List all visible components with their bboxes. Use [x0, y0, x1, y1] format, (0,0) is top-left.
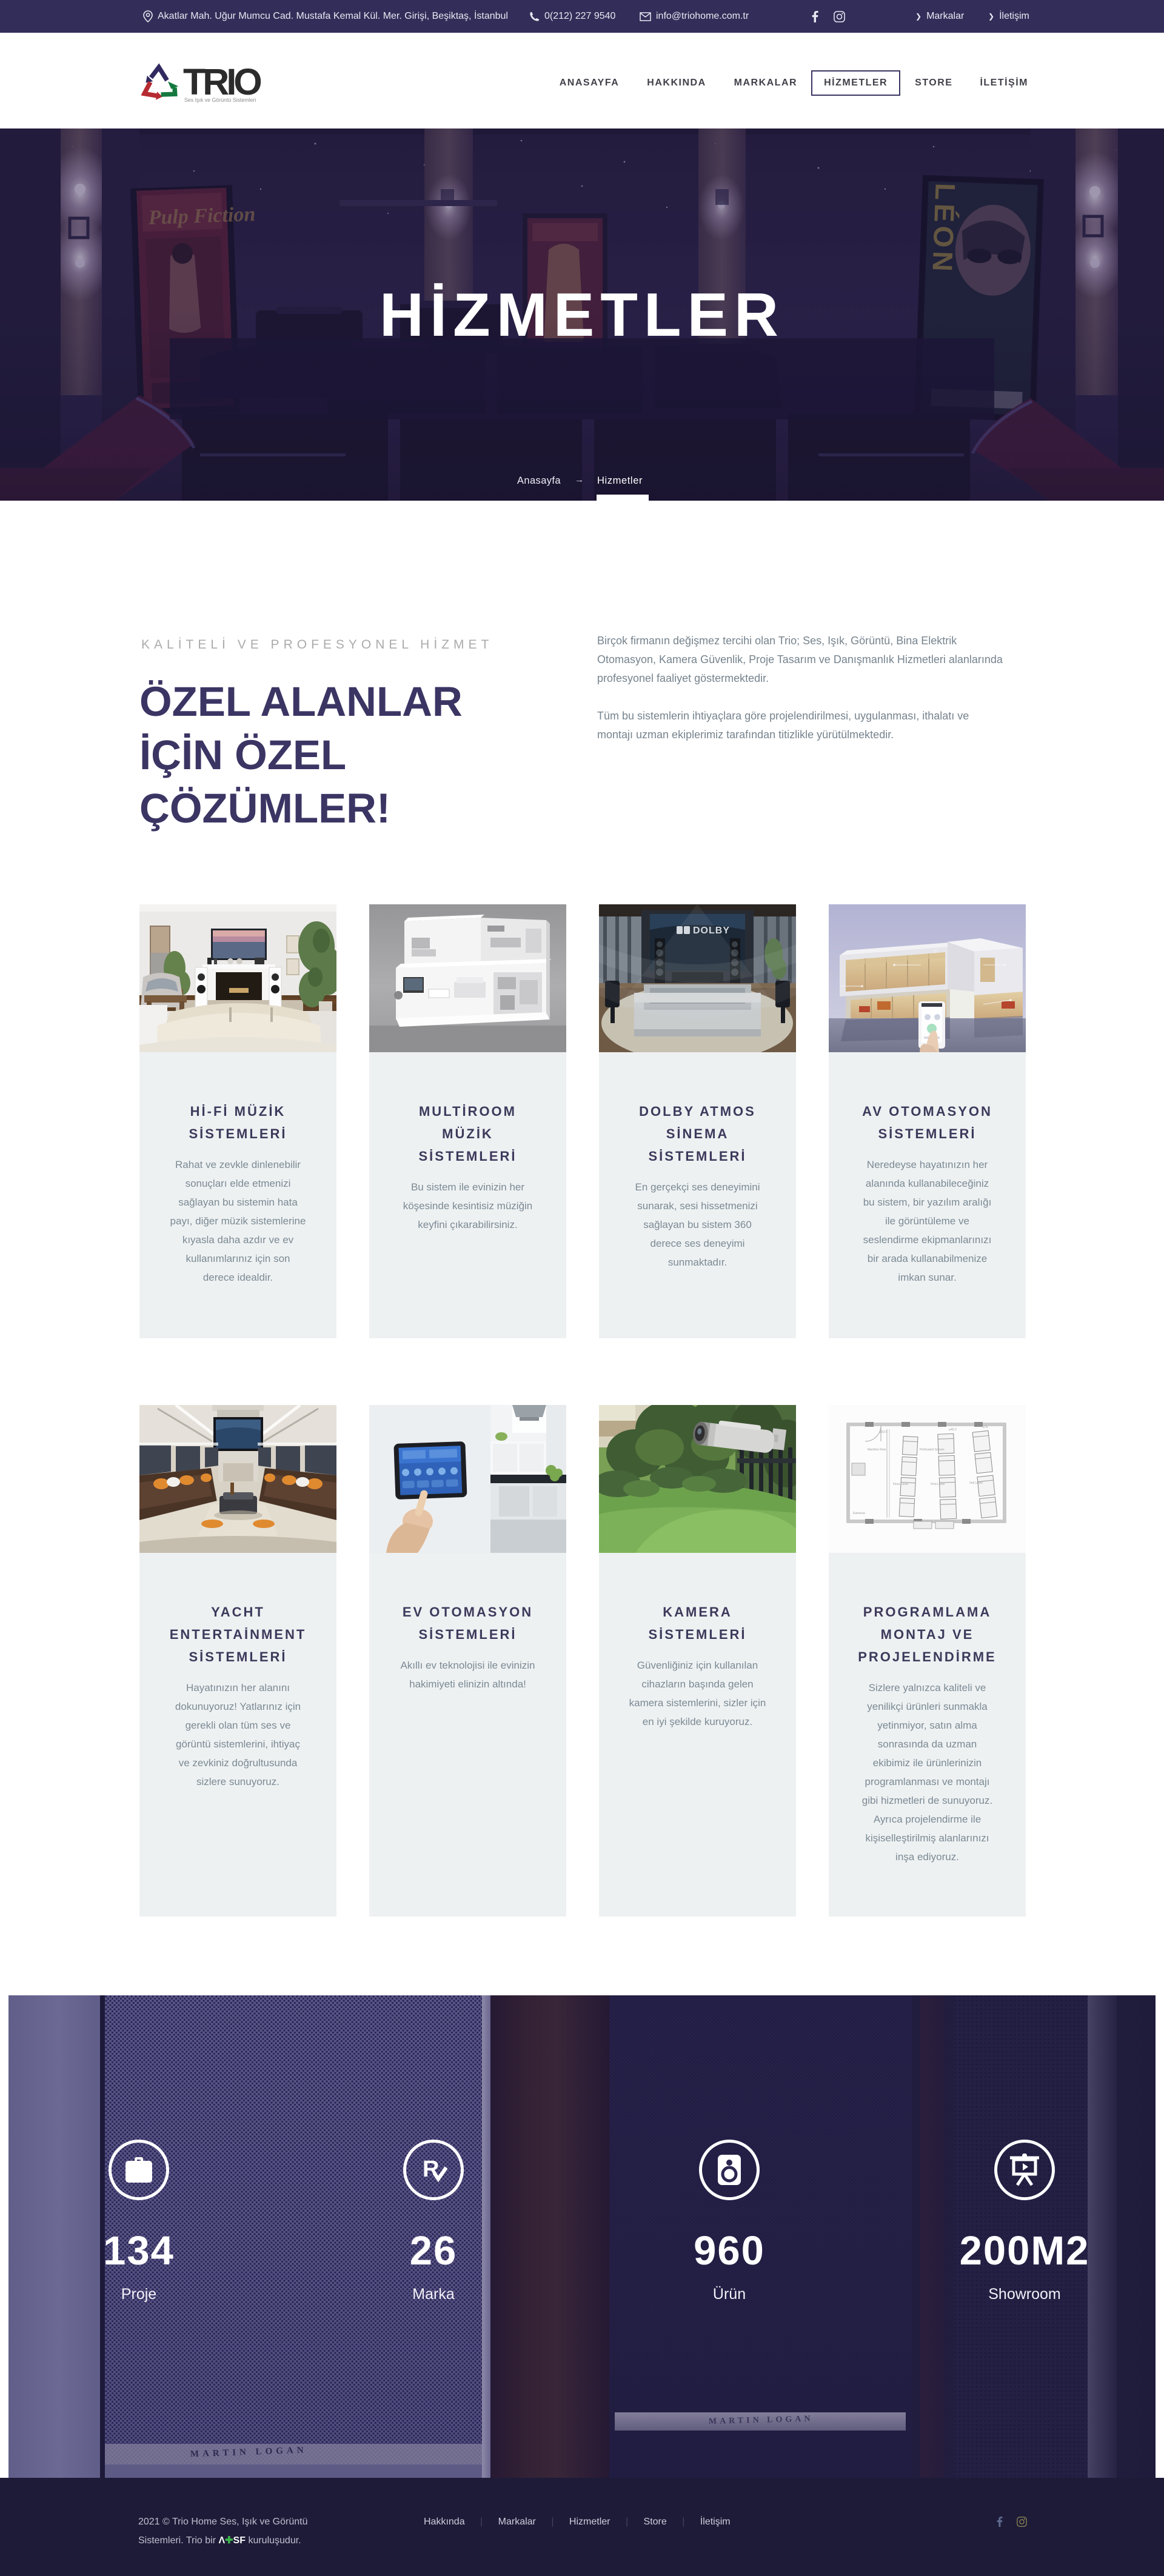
svg-text:Machine Row: Machine Row — [868, 1448, 886, 1452]
svg-text:Floor Level: Floor Level — [893, 1483, 908, 1486]
svg-text:First Level: First Level — [931, 1483, 945, 1486]
svg-text:TRIO: TRIO — [183, 61, 261, 102]
svg-text:⌀63.5: ⌀63.5 — [880, 1430, 888, 1434]
svg-text:⌀45.2: ⌀45.2 — [949, 1428, 957, 1432]
svg-text:♫: ♫ — [933, 948, 937, 954]
svg-text:Entrance: Entrance — [853, 1512, 865, 1515]
svg-text:2nd Level: 2nd Level — [969, 1481, 983, 1485]
svg-text:Ses Işık ve Görüntü Sistemleri: Ses Işık ve Görüntü Sistemleri — [184, 97, 256, 103]
svg-text:Perforated Screen: Perforated Screen — [920, 1448, 945, 1452]
svg-text:⌀76: ⌀76 — [983, 1426, 988, 1429]
